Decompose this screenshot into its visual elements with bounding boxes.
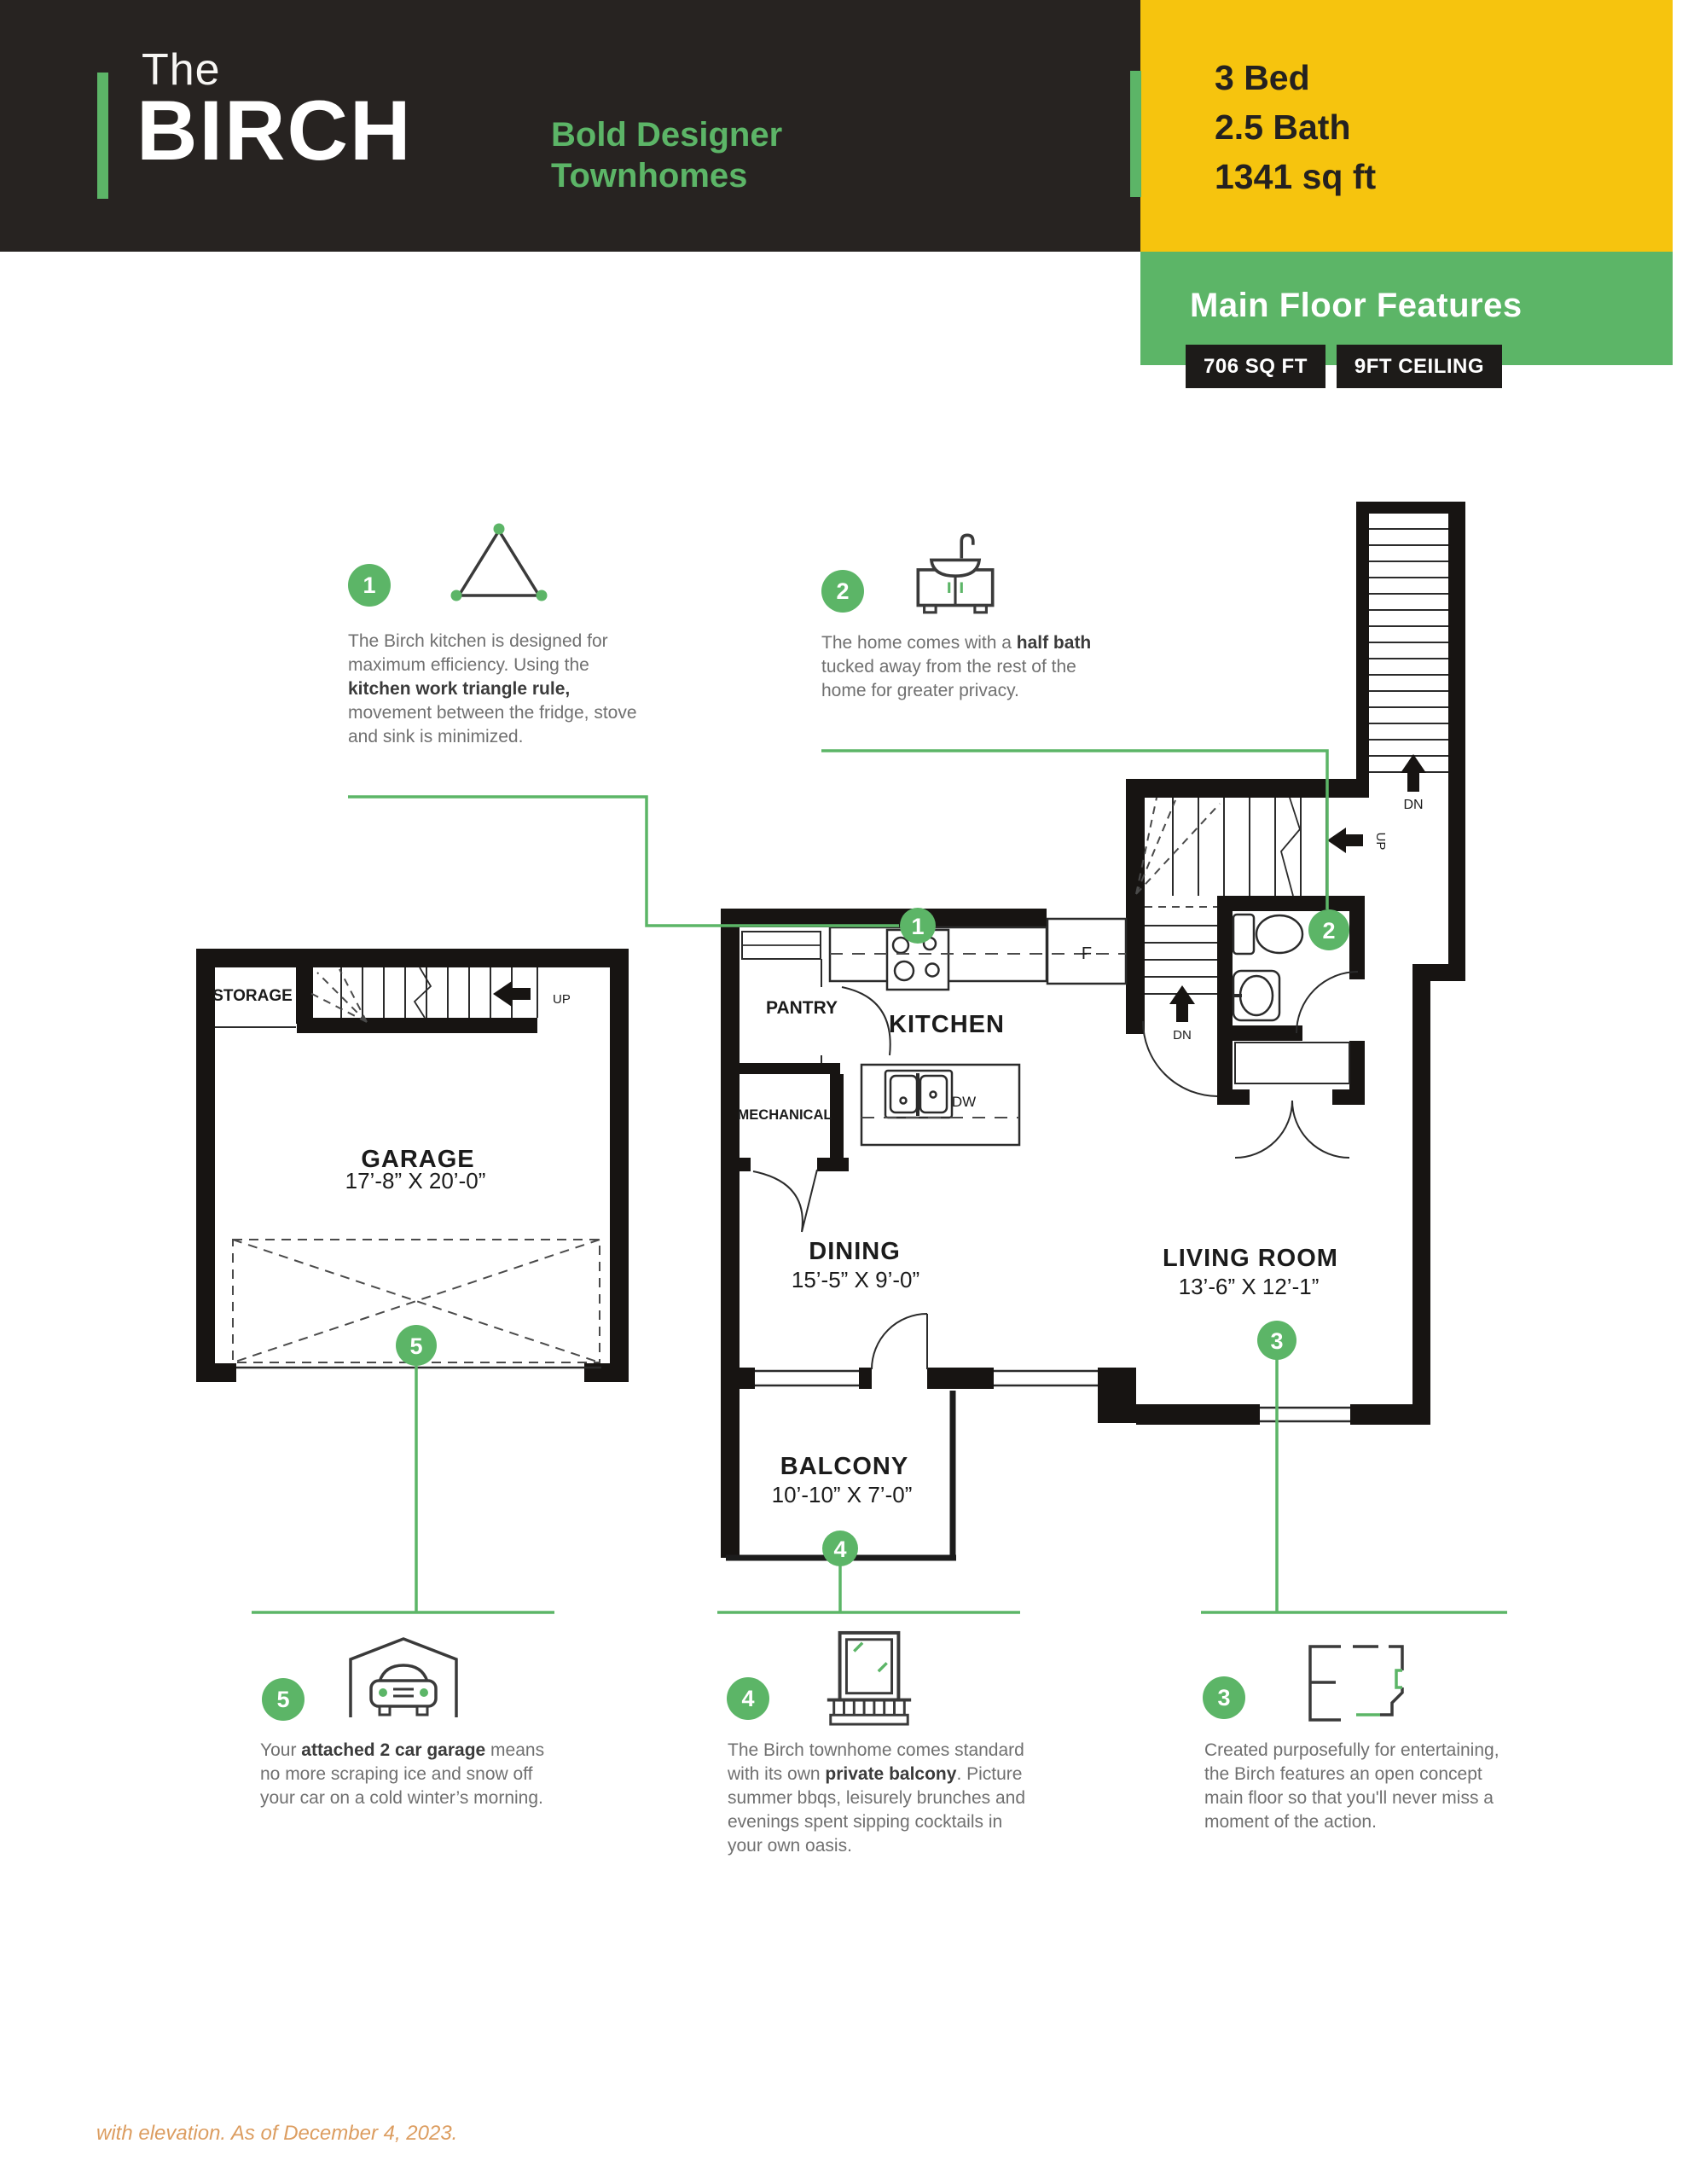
open-floorplan-icon <box>1298 1638 1411 1723</box>
winder-up-arrow <box>1327 828 1363 853</box>
svg-text:4: 4 <box>833 1536 846 1562</box>
balcony-label: BALCONY <box>780 1453 908 1480</box>
dishwasher-label: DW <box>952 1094 976 1110</box>
connector-3 <box>1201 1359 1507 1612</box>
basement-dn-arrow <box>1169 985 1195 1022</box>
callout-5-text: Your attached 2 car garage means no more… <box>260 1739 560 1810</box>
basement-dn-label: DN <box>1173 1028 1192 1043</box>
svg-text:2: 2 <box>1322 918 1335 944</box>
svg-text:5: 5 <box>409 1333 422 1359</box>
connector-1 <box>348 797 899 926</box>
garage-up-label: UP <box>553 992 571 1007</box>
svg-text:1: 1 <box>911 914 924 939</box>
tower-dn-arrow <box>1401 754 1426 792</box>
living-label: LIVING ROOM <box>1163 1245 1338 1272</box>
callout-4-number: 4 <box>727 1677 769 1720</box>
kitchen-label: KITCHEN <box>889 1011 1005 1038</box>
fridge-label: F <box>1082 944 1092 963</box>
callout-4-text: The Birch townhome comes standard with i… <box>728 1739 1028 1858</box>
callout-5-number: 5 <box>262 1678 305 1721</box>
winder-up-label: UP <box>1373 833 1388 851</box>
dining-label: DINING <box>809 1238 901 1265</box>
callout-3-text: Created purposefully for entertaining, t… <box>1204 1739 1505 1834</box>
connector-5 <box>252 1366 554 1612</box>
connector-4 <box>717 1565 1020 1612</box>
balcony-dim: 10’-10” X 7’-0” <box>772 1482 913 1507</box>
garage-up-arrow <box>493 981 531 1007</box>
tower-dn-label: DN <box>1403 798 1423 812</box>
balcony-icon <box>819 1628 919 1728</box>
mechanical-label: MECHANICAL <box>738 1107 832 1123</box>
storage-label: STORAGE <box>212 987 293 1005</box>
floorplan-walls <box>196 502 1465 1558</box>
dining-dim: 15’-5” X 9’-0” <box>792 1267 919 1292</box>
connector-2 <box>821 751 1327 909</box>
pantry-label: PANTRY <box>766 998 838 1018</box>
callout-3-number: 3 <box>1203 1676 1245 1719</box>
garage-dim: 17’-8” X 20’-0” <box>345 1168 486 1194</box>
garage-car-icon <box>344 1632 463 1722</box>
floorplan-linework <box>215 529 1448 1558</box>
brochure-page: The BIRCH Bold Designer Townhomes 3 Bed … <box>0 0 1688 2184</box>
living-dim: 13’-6” X 12’-1” <box>1179 1274 1320 1299</box>
svg-text:3: 3 <box>1270 1328 1283 1354</box>
footer-note: with elevation. As of December 4, 2023. <box>96 2122 457 2146</box>
